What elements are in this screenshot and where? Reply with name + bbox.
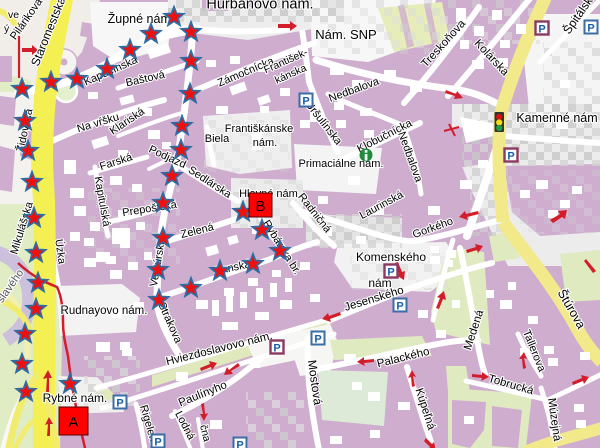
svg-text:nám.: nám. — [253, 137, 277, 149]
svg-text:Hurbanovo nám.: Hurbanovo nám. — [206, 0, 313, 13]
svg-text:A: A — [68, 414, 78, 431]
svg-text:Kamenné nám: Kamenné nám — [516, 111, 597, 125]
svg-text:Františkánske: Františkánske — [225, 123, 293, 135]
svg-text:B: B — [255, 198, 265, 215]
svg-text:Biela: Biela — [205, 133, 230, 145]
svg-text:Primaciálne nám.: Primaciálne nám. — [299, 158, 384, 170]
svg-text:ý: ý — [4, 23, 10, 35]
svg-text:Rudnayovo nám.: Rudnayovo nám. — [61, 305, 148, 317]
svg-text:Rybné nám.: Rybné nám. — [43, 391, 108, 405]
svg-text:Nám. SNP: Nám. SNP — [315, 27, 376, 42]
svg-text:ve: ve — [8, 9, 19, 21]
svg-text:Komenského: Komenského — [356, 250, 426, 264]
